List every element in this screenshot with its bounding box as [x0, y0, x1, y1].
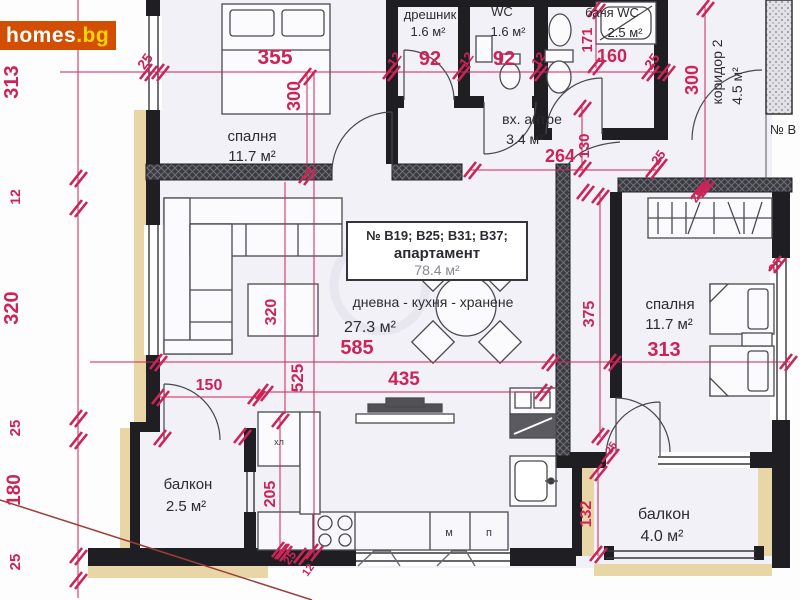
label-entry-area: 3.4 м²: [506, 131, 544, 147]
dim-left-313: 313: [1, 65, 23, 98]
dim-table-320: 320: [263, 299, 280, 326]
dim-left-12: 12: [7, 189, 23, 205]
sink-icon: [510, 456, 558, 506]
bath-sink-icon: [549, 14, 571, 46]
logo-suffix: .bg: [76, 24, 109, 48]
label-wc-area: 1.6 м²: [491, 24, 527, 39]
label-pantry: п: [486, 527, 492, 539]
apartment-info-box: № В19; В25; В31; В37; апартамент 78.4 м²: [347, 222, 527, 280]
label-bath-name: баня WC: [585, 5, 639, 20]
dim-entry-264: 264: [545, 146, 575, 166]
dim-living-585: 585: [340, 337, 373, 359]
dim-bed2-313: 313: [647, 339, 680, 361]
label-closet-name: дрешник: [404, 7, 457, 22]
wardrobe: [648, 198, 772, 238]
dim-corridor-300: 300: [682, 65, 702, 95]
dim-top-355: 355: [257, 46, 292, 69]
floorplan-drawing: 313 12 320 25 180 25 25 355 12 92 12 92 …: [0, 0, 800, 600]
window-living-left: [144, 225, 162, 355]
label-balcony2-area: 4.0 м²: [640, 528, 684, 545]
dim-balcony2-132: 132: [578, 501, 595, 528]
label-bedroom2-area: 11.7 м²: [645, 316, 693, 333]
dim-passage-375: 375: [581, 301, 598, 328]
dim-balcony1-205: 205: [262, 481, 279, 508]
dim-bath-171: 171: [579, 27, 596, 52]
label-living-area: 27.3 м²: [344, 319, 397, 336]
dim-left-25b: 25: [7, 554, 24, 571]
label-balcony1-name: балкон: [164, 476, 213, 493]
dim-living-435: 435: [388, 369, 420, 390]
label-bath-area: 2.5 м²: [608, 25, 644, 40]
label-closet-area: 1.6 м²: [411, 24, 447, 39]
dim-left-25a: 25: [7, 420, 24, 437]
dim-entry-130: 130: [576, 133, 593, 158]
label-balcony1-area: 2.5 м²: [166, 498, 206, 515]
homes-bg-logo: homes.bg: [0, 21, 116, 50]
window-kitchen-bottom: [356, 548, 510, 566]
label-wc-name: WC: [491, 4, 513, 19]
coffee-table: [248, 284, 318, 336]
label-corridor-area: 4.5 м²: [729, 67, 745, 105]
floorplan-screenshot: 313 12 320 25 180 25 25 355 12 92 12 92 …: [0, 0, 800, 600]
kitchen-counter: [258, 512, 508, 550]
label-bedroom1-name: спалня: [227, 128, 276, 145]
label-fridge: хл: [274, 437, 284, 447]
dim-left-320: 320: [1, 291, 23, 324]
dim-living-525: 525: [288, 364, 307, 392]
dim-left-180: 180: [4, 474, 25, 506]
label-bedroom1-area: 11.7 м²: [228, 148, 276, 165]
label-bedroom2-name: спалня: [645, 296, 694, 313]
logo-main: homes: [6, 24, 76, 48]
window-bedroom2-bottom: [658, 452, 750, 468]
apartment-line2: апартамент: [394, 245, 480, 262]
dim-balcony1-150: 150: [196, 377, 223, 394]
dim-top-92a: 92: [419, 48, 441, 70]
apartment-line1: № В19; В25; В31; В37;: [366, 228, 508, 243]
label-balcony2-name: балкон: [638, 506, 690, 523]
dim-bed1-300: 300: [284, 81, 304, 111]
dim-top-160: 160: [597, 46, 627, 66]
apartment-line3: 78.4 м²: [414, 262, 460, 278]
structural-column: [766, 0, 792, 114]
label-neighbor-unit: № В: [770, 122, 796, 137]
label-washer: м: [445, 527, 453, 539]
label-living-name: дневна - кухня - хранене: [353, 294, 514, 310]
label-corridor-name: коридор 2: [709, 39, 725, 104]
dim-top-92b: 92: [493, 48, 515, 70]
wc-sink-icon: [476, 36, 492, 62]
label-entry-name: вх. антре: [502, 111, 562, 127]
